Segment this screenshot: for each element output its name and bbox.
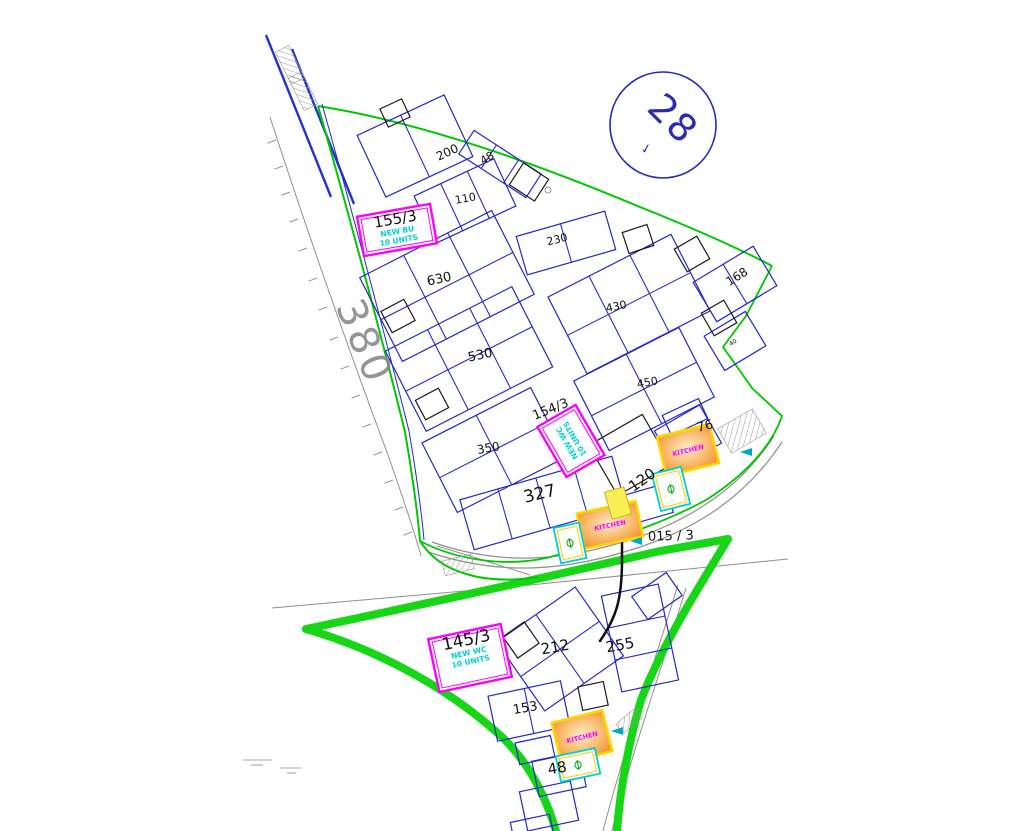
- survey-tick: [363, 424, 372, 427]
- unit-145-3: 145/3NEW WC10 UNITS: [428, 623, 512, 692]
- parcel-block-black: [674, 236, 710, 272]
- plot-label-530: 530: [467, 346, 494, 366]
- survey-tick: [319, 307, 328, 310]
- survey-point: [545, 187, 551, 193]
- survey-tick: [330, 337, 339, 340]
- plot-label-200: 200: [434, 141, 461, 163]
- parcel-block-black: [622, 225, 654, 254]
- street-number-label: 380: [326, 293, 402, 392]
- parcel-block-black: [503, 622, 539, 658]
- green-road-right-curve: [617, 539, 728, 831]
- survey-tick: [352, 395, 361, 398]
- survey-tick: [374, 452, 383, 455]
- direction-marker-icon: [611, 727, 623, 735]
- direction-marker-icon: [740, 448, 752, 456]
- parcel-block-black: [578, 682, 608, 711]
- plot-label-255: 255: [604, 634, 635, 657]
- check-mark-icon: ✓: [640, 141, 653, 158]
- wc-box: [652, 467, 690, 511]
- survey-tick: [395, 507, 404, 510]
- survey-tick: [290, 219, 299, 222]
- plot-label-630: 630: [426, 270, 453, 290]
- note-015-3: 015 / 3: [648, 528, 694, 545]
- plot-label-168: 168: [723, 265, 750, 289]
- survey-tick: [275, 166, 284, 169]
- survey-tick: [282, 192, 291, 195]
- plot-label-350: 350: [476, 439, 501, 457]
- site-plan-page: 155/3NEW BU10 UNITSNEW WC10 UNITS154/314…: [0, 0, 1024, 831]
- plot-label-110: 110: [454, 190, 477, 206]
- survey-tick: [299, 248, 308, 251]
- road-mid-outer: [428, 442, 782, 568]
- survey-tick: [404, 532, 413, 535]
- hatched-area: [718, 409, 767, 453]
- survey-tick: [309, 278, 318, 281]
- parcel-block-black: [415, 388, 448, 420]
- survey-tick: [341, 366, 350, 369]
- survey-tick: [268, 140, 277, 143]
- green-road-left-curve: [306, 629, 556, 831]
- plot-label-450: 450: [636, 374, 659, 390]
- plot-label-153: 153: [512, 699, 539, 718]
- plot-label-230: 230: [545, 231, 569, 249]
- unit-155-3: 155/3NEW BU10 UNITS: [357, 204, 437, 256]
- plot-label-430: 430: [605, 298, 628, 315]
- survey-tick: [385, 480, 394, 483]
- site-plan-canvas: 155/3NEW BU10 UNITSNEW WC10 UNITS154/314…: [0, 0, 1024, 831]
- plot-label-48-lower: 48: [546, 758, 568, 779]
- plot-label-120: 120: [625, 464, 659, 495]
- plot-label-212: 212: [539, 636, 570, 659]
- sheet-stamp: 28✓: [610, 72, 716, 178]
- plot-label-327: 327: [522, 481, 558, 508]
